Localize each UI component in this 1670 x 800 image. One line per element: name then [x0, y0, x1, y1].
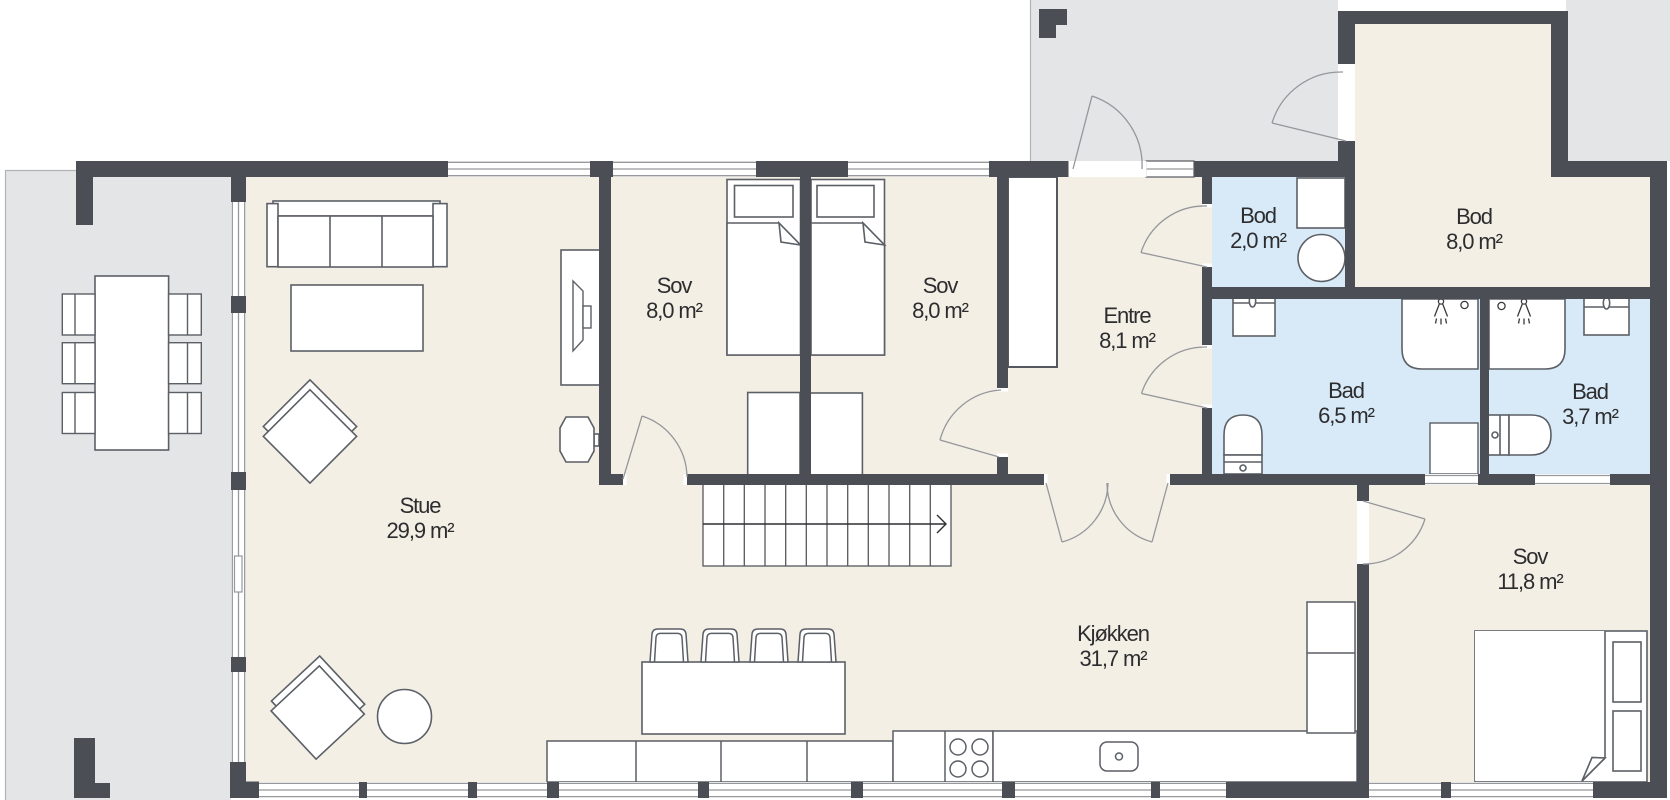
svg-text:Sov: Sov: [1513, 544, 1549, 569]
svg-text:Kjøkken: Kjøkken: [1077, 621, 1149, 646]
svg-text:Bad: Bad: [1572, 379, 1608, 404]
svg-text:2,0 m²: 2,0 m²: [1230, 228, 1287, 253]
svg-text:Bod: Bod: [1456, 204, 1492, 229]
svg-text:31,7 m²: 31,7 m²: [1080, 646, 1148, 671]
svg-text:11,8 m²: 11,8 m²: [1497, 569, 1563, 594]
svg-text:8,0 m²: 8,0 m²: [1446, 229, 1503, 254]
svg-text:8,0 m²: 8,0 m²: [646, 298, 703, 323]
svg-text:29,9 m²: 29,9 m²: [387, 518, 455, 543]
svg-text:Bod: Bod: [1240, 203, 1276, 228]
svg-text:Sov: Sov: [923, 273, 959, 298]
svg-text:8,0 m²: 8,0 m²: [912, 298, 969, 323]
svg-text:Bad: Bad: [1328, 378, 1364, 403]
svg-text:8,1 m²: 8,1 m²: [1099, 328, 1156, 353]
svg-text:Entre: Entre: [1103, 303, 1151, 328]
svg-text:3,7 m²: 3,7 m²: [1562, 404, 1619, 429]
svg-text:6,5 m²: 6,5 m²: [1318, 403, 1375, 428]
svg-text:Sov: Sov: [657, 273, 693, 298]
svg-text:Stue: Stue: [400, 493, 442, 518]
